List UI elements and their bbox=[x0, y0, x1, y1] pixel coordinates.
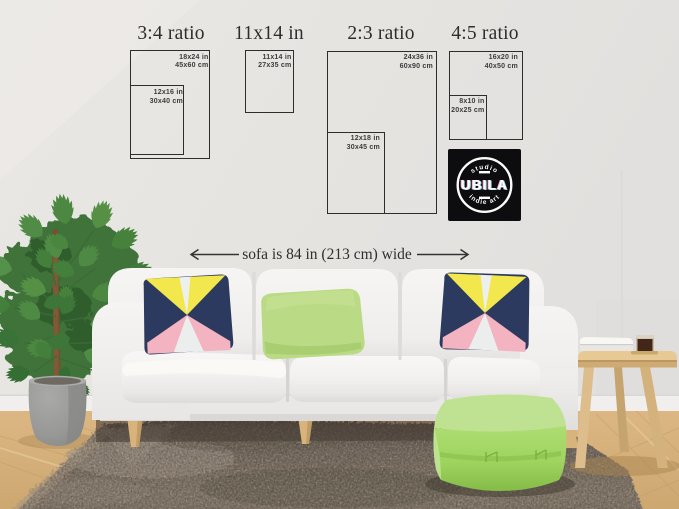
svg-text:UBILA: UBILA bbox=[461, 178, 508, 193]
